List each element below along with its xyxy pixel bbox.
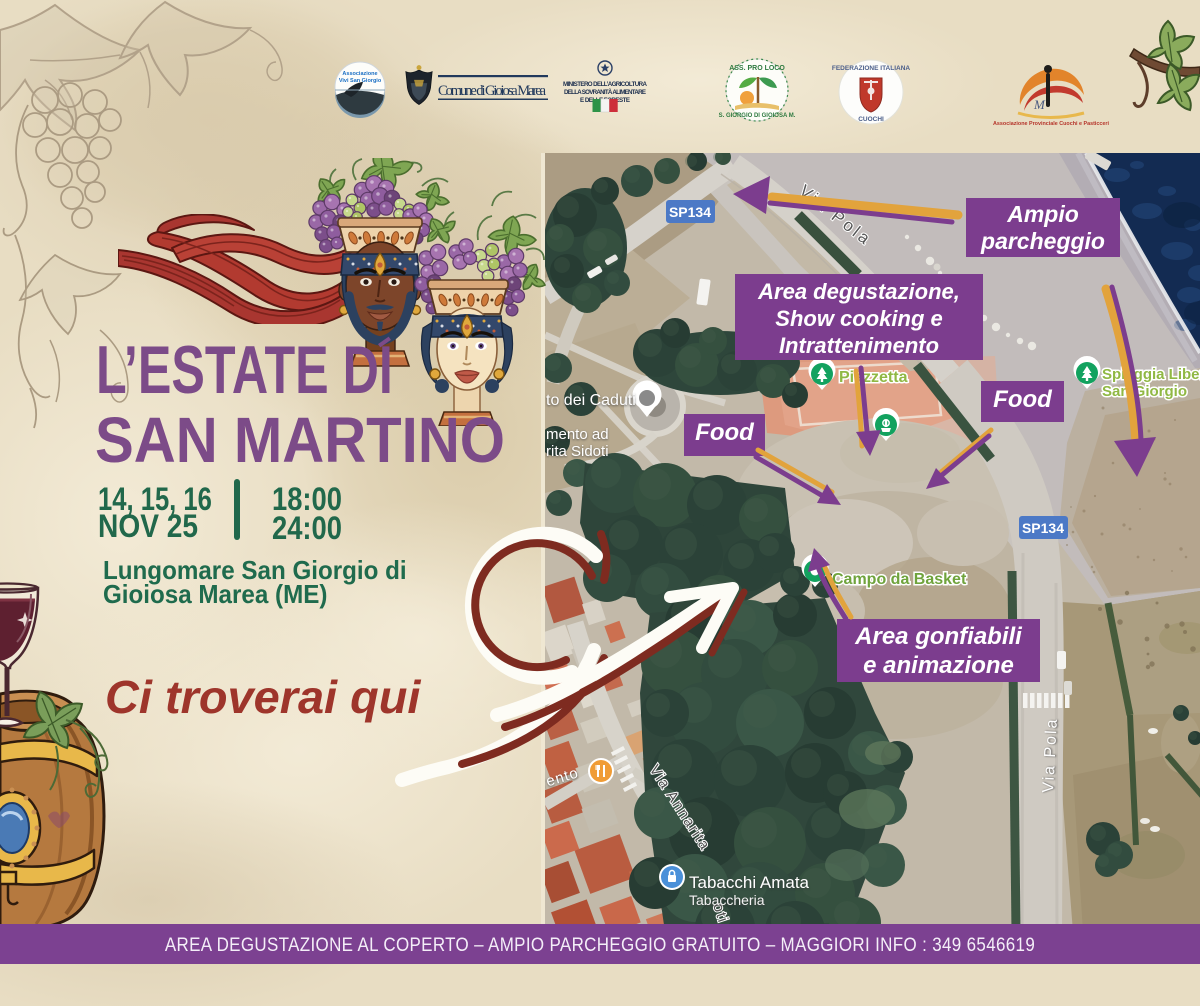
svg-text:Comune di Gioiosa Marea: Comune di Gioiosa Marea (438, 83, 547, 99)
svg-text:Associazione: Associazione (342, 71, 377, 77)
svg-text:DELLA SOVRANITÀ ALIMENTARE: DELLA SOVRANITÀ ALIMENTARE (564, 89, 646, 96)
svg-text:M: M (1033, 97, 1046, 112)
svg-text:Associazione Provinciale Cuoch: Associazione Provinciale Cuochi e Pastic… (993, 121, 1109, 127)
svg-text:S. GIORGIO DI GIOIOSA M.: S. GIORGIO DI GIOIOSA M. (719, 113, 796, 119)
svg-text:ASS. PRO LOCO: ASS. PRO LOCO (729, 65, 785, 72)
svg-text:MINISTERO DELL’AGRICOLTURA: MINISTERO DELL’AGRICOLTURA (563, 81, 648, 88)
svg-text:FEDERAZIONE ITALIANA: FEDERAZIONE ITALIANA (832, 65, 911, 72)
svg-text:CUOCHI: CUOCHI (858, 116, 884, 123)
